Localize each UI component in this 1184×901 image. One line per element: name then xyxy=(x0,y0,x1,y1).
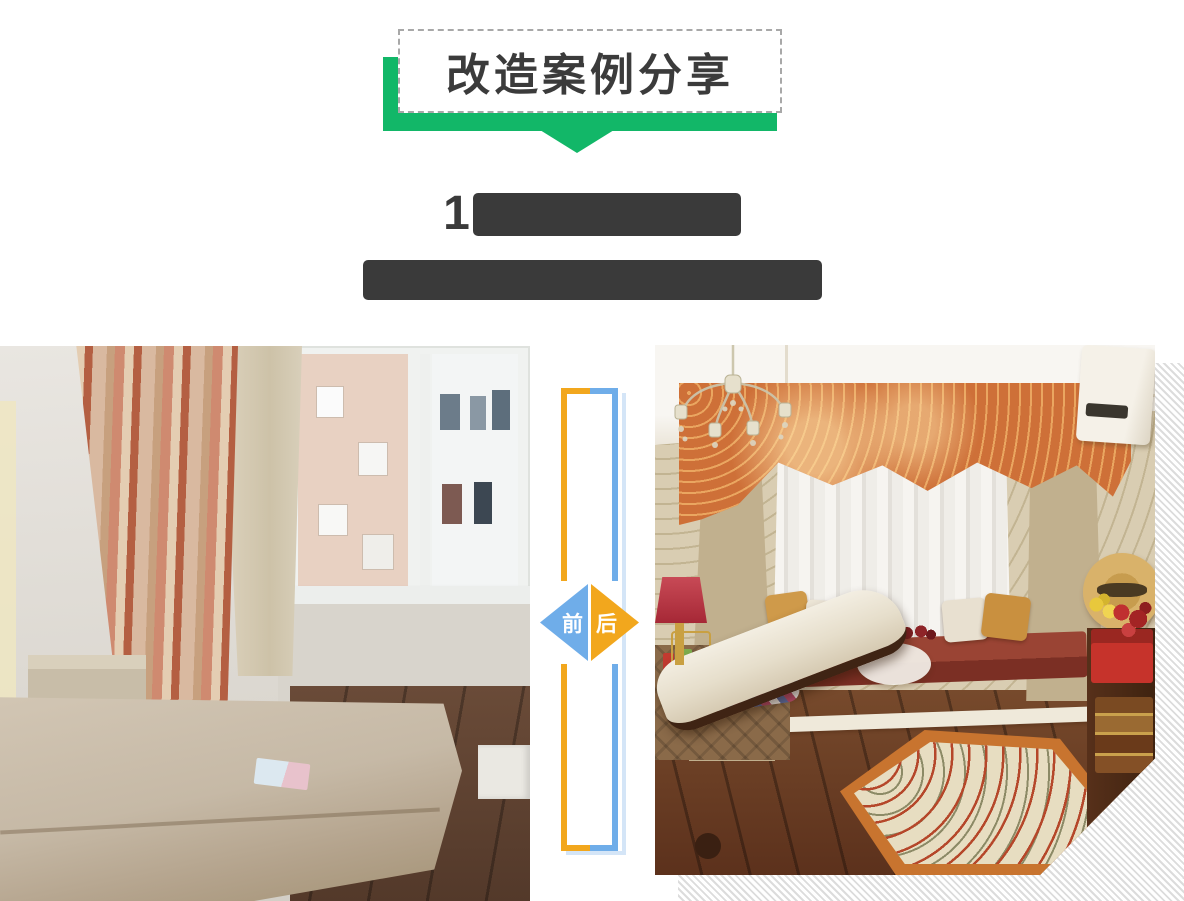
before-curtain xyxy=(66,346,238,702)
before-window-sill xyxy=(278,586,530,604)
chandelier xyxy=(655,345,815,460)
nightstand-top xyxy=(28,655,146,669)
case-title-row: 1 xyxy=(0,190,1184,238)
building-window xyxy=(362,534,394,570)
bed-leg-scroll xyxy=(695,833,721,859)
chandelier-graphic xyxy=(655,345,815,460)
mattress-label xyxy=(254,758,311,790)
table-lamp-shade xyxy=(655,577,707,623)
building-window xyxy=(474,482,492,524)
after-photo xyxy=(655,345,1155,875)
before-window-right-pane xyxy=(432,354,518,586)
promo-page: 改造案例分享 1 xyxy=(0,0,1184,901)
divider-left-lower xyxy=(561,664,567,851)
after-badge: 后 xyxy=(591,584,639,661)
air-conditioner xyxy=(1076,345,1155,445)
building-window xyxy=(358,442,388,476)
banner-pointer-icon xyxy=(540,130,614,153)
before-badge: 前 xyxy=(540,584,588,661)
banner-title-box: 改造案例分享 xyxy=(398,29,782,113)
divider-shadow xyxy=(566,851,626,855)
banner-title: 改造案例分享 xyxy=(446,39,734,103)
before-mattress xyxy=(0,691,462,901)
before-window xyxy=(286,346,530,604)
case-title-visible-text: 1 xyxy=(443,192,470,236)
table-lamp-stem xyxy=(675,623,684,665)
divider-bottom-right xyxy=(590,845,618,851)
mattress-piping xyxy=(0,807,440,834)
seat-pillow-gold xyxy=(980,592,1031,641)
building-window xyxy=(318,504,348,536)
before-radiator xyxy=(478,745,530,799)
before-window-left-pane xyxy=(298,354,408,586)
case-subtitle-row xyxy=(0,258,1184,302)
before-door-edge xyxy=(0,401,16,711)
after-badge-label: 后 xyxy=(596,608,617,638)
building-window xyxy=(470,396,486,430)
divider-bottom-left xyxy=(561,845,590,851)
divider-left-upper xyxy=(561,388,567,581)
ac-vent xyxy=(1085,403,1128,419)
case-subtitle-redacted-bar xyxy=(363,260,822,300)
case-title-redacted-bar xyxy=(473,193,741,236)
red-flowers xyxy=(1107,597,1155,641)
before-badge-label: 前 xyxy=(562,608,583,638)
building-window xyxy=(316,386,344,418)
divider-right-lower xyxy=(612,664,618,851)
divider-right-upper xyxy=(612,388,618,581)
building-window xyxy=(492,390,510,430)
gilded-books xyxy=(1095,697,1153,773)
building-window xyxy=(442,484,462,524)
before-window-mullion xyxy=(420,354,430,586)
building-window xyxy=(440,394,460,430)
before-photo xyxy=(0,346,530,901)
